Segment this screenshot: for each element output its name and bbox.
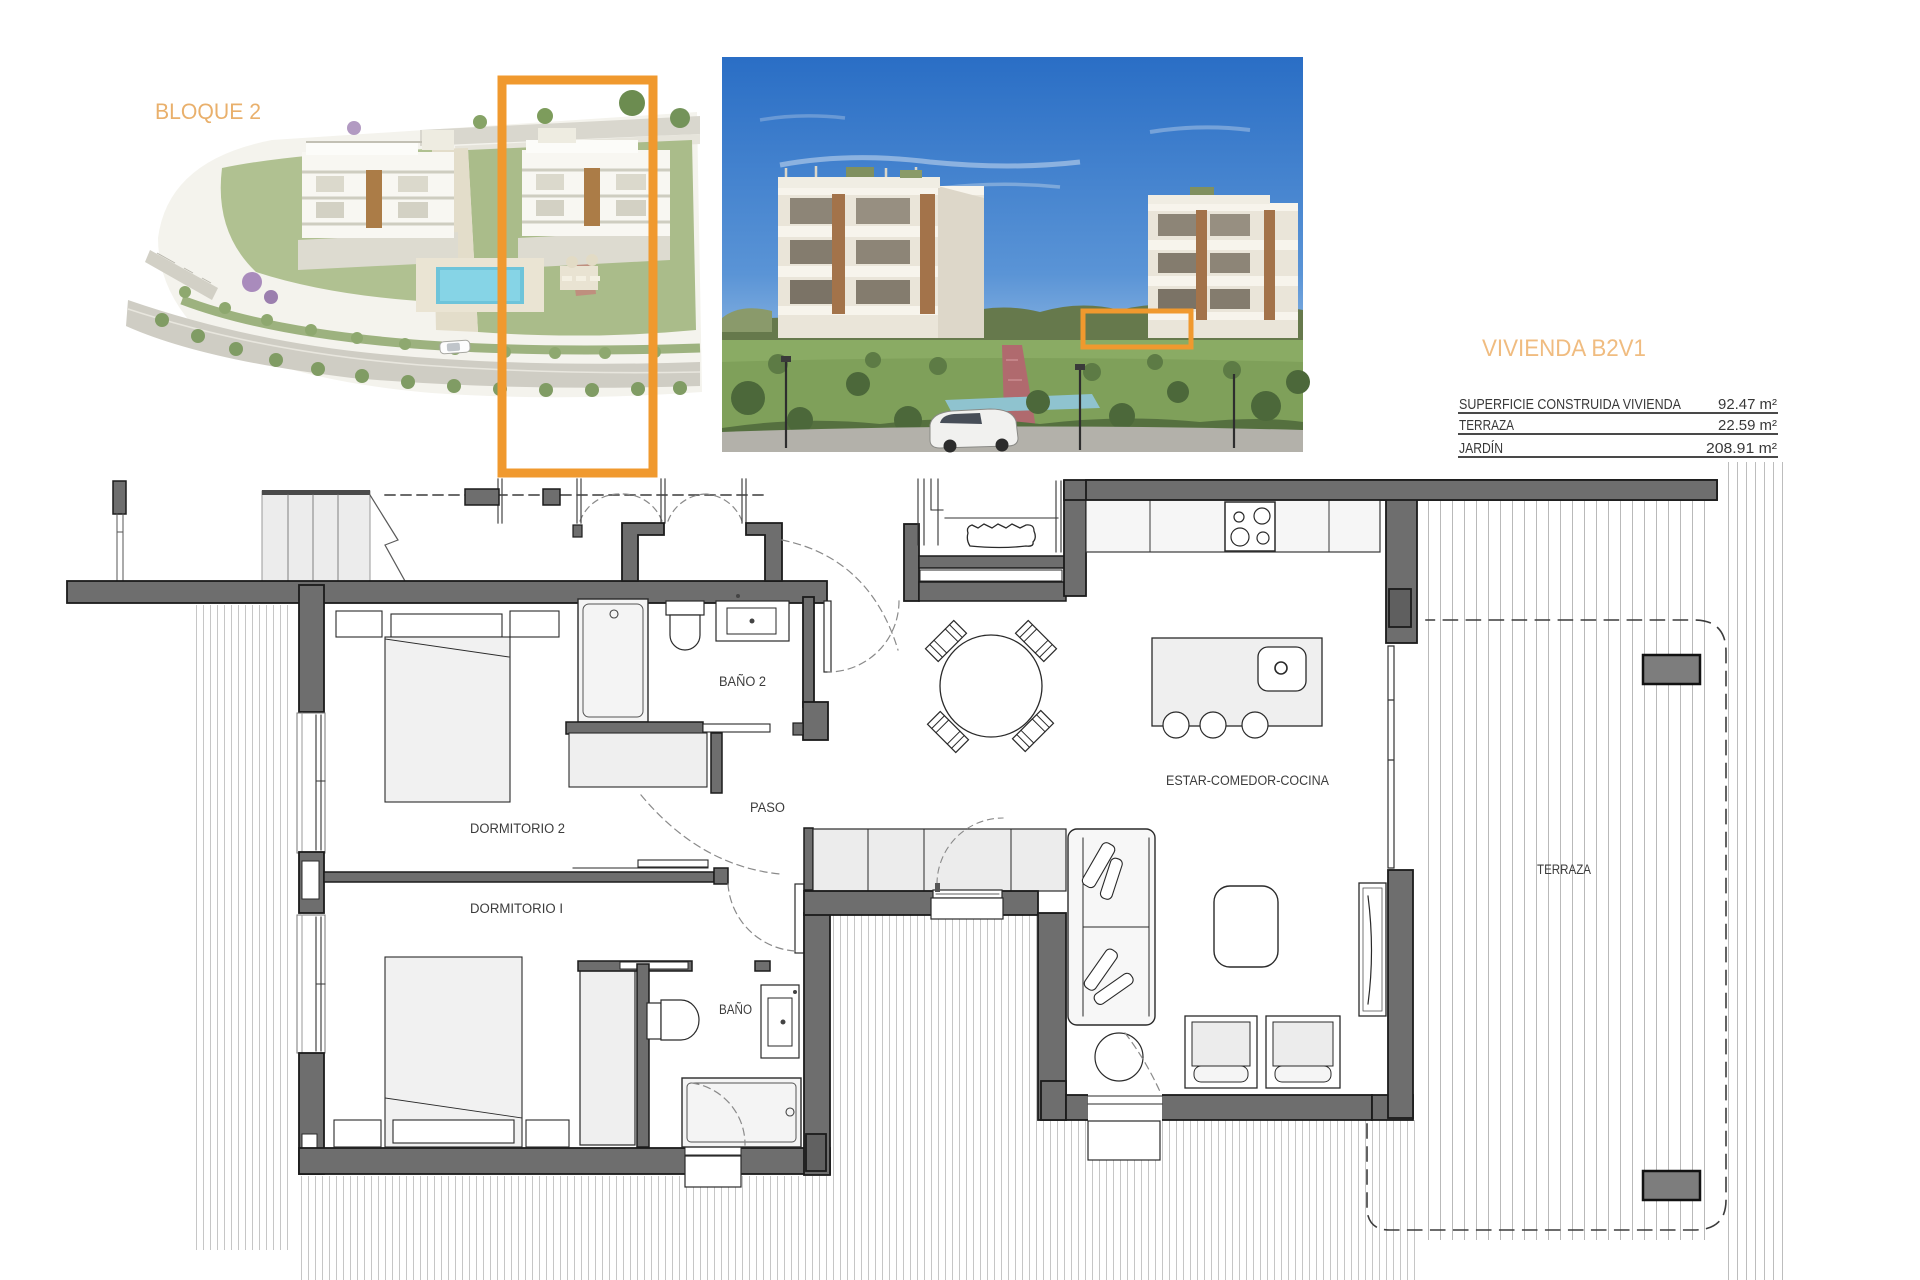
svg-text:208.91 m²: 208.91 m² [1706,441,1777,457]
svg-text:PASO: PASO [750,800,785,815]
svg-text:JARDÍN: JARDÍN [1459,440,1503,457]
svg-text:VIVIENDA B2V1: VIVIENDA B2V1 [1482,335,1646,362]
svg-text:BLOQUE 2: BLOQUE 2 [155,99,261,124]
svg-text:BAÑO: BAÑO [719,1002,752,1017]
svg-text:ESTAR-COMEDOR-COCINA: ESTAR-COMEDOR-COCINA [1166,773,1329,788]
svg-text:92.47 m²: 92.47 m² [1718,397,1777,413]
svg-text:SUPERFICIE CONSTRUIDA VIVIENDA: SUPERFICIE CONSTRUIDA VIVIENDA [1459,397,1681,413]
svg-text:BAÑO 2: BAÑO 2 [719,674,766,689]
svg-text:TERRAZA: TERRAZA [1537,862,1591,877]
svg-text:DORMITORIO 2: DORMITORIO 2 [470,821,565,836]
svg-text:TERRAZA: TERRAZA [1459,418,1514,434]
svg-text:22.59 m²: 22.59 m² [1718,418,1777,434]
svg-text:DORMITORIO I: DORMITORIO I [470,901,563,916]
